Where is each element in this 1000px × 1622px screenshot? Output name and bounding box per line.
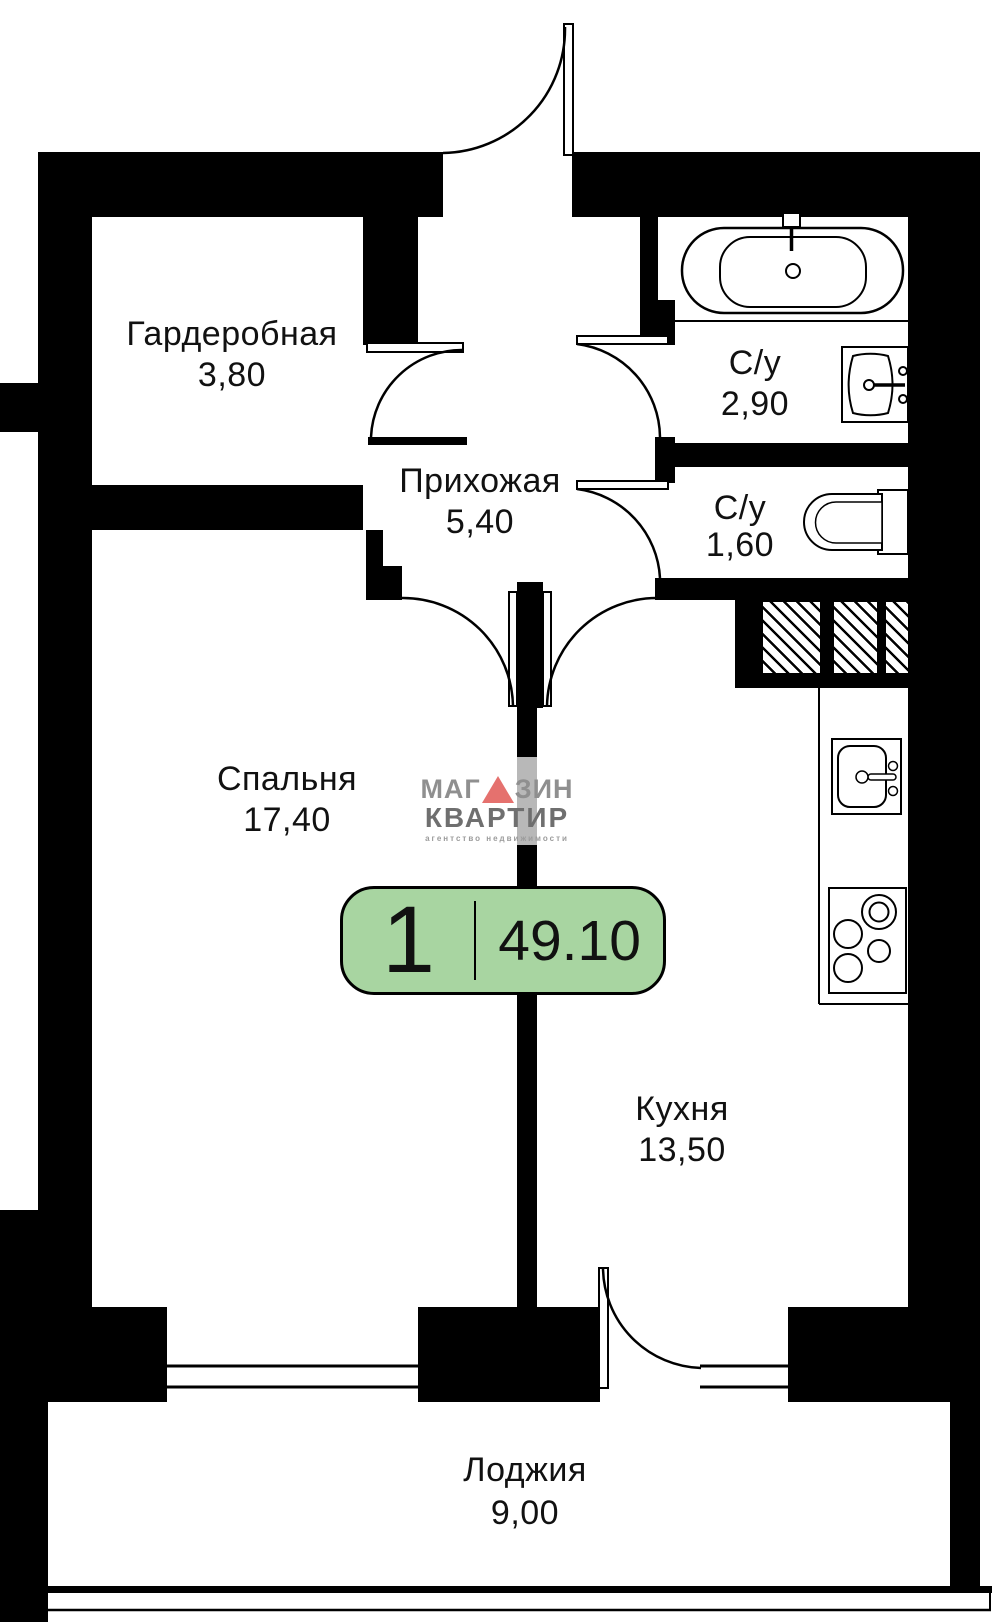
room-area: 13,50 bbox=[532, 1130, 832, 1171]
bathtub-icon bbox=[682, 213, 903, 313]
agency-logo: МАГ ЗИН КВАРТИР агентство недвижимости bbox=[417, 776, 577, 843]
room-area: 3,80 bbox=[82, 355, 382, 396]
bedroom-door-arc bbox=[402, 598, 513, 706]
room-name: Гардеробная bbox=[82, 314, 382, 355]
room-name: Прихожая bbox=[330, 461, 630, 502]
loggia-glazing bbox=[48, 1586, 992, 1610]
room-name: С/у bbox=[590, 490, 890, 527]
kitchen-door-arc bbox=[547, 598, 658, 706]
badge-total-area: 49.10 bbox=[476, 908, 663, 974]
logo-text: ЗИН bbox=[515, 776, 574, 803]
room-area: 2,90 bbox=[605, 384, 905, 425]
room-name: Кухня bbox=[532, 1089, 832, 1130]
logo-triangle-icon bbox=[482, 776, 514, 803]
kitchen-sink-icon bbox=[832, 739, 901, 814]
logo-word-kvartir: КВАРТИР bbox=[417, 803, 577, 833]
stove-icon bbox=[829, 888, 906, 993]
room-area: 9,00 bbox=[375, 1492, 675, 1535]
room-area: 1,60 bbox=[590, 527, 890, 564]
room-area: 17,40 bbox=[137, 800, 437, 841]
balcony-door-arc bbox=[603, 1268, 701, 1368]
entrance-door-arc bbox=[443, 27, 565, 153]
badge-rooms-count: 1 bbox=[343, 886, 474, 995]
room-label-wardrobe: Гардеробная 3,80 bbox=[82, 314, 382, 396]
wardrobe-door-arc bbox=[371, 350, 463, 437]
logo-text: МАГ bbox=[420, 776, 480, 803]
room-label-bathroom-2: С/у 1,60 bbox=[590, 490, 890, 564]
logo-tagline: агентство недвижимости bbox=[417, 834, 577, 843]
apartment-badge: 1 49.10 bbox=[340, 886, 666, 995]
floor-plan: Гардеробная 3,80 Прихожая 5,40 С/у 2,90 … bbox=[0, 0, 1000, 1622]
room-label-bathroom-1: С/у 2,90 bbox=[605, 343, 905, 425]
room-label-kitchen: Кухня 13,50 bbox=[532, 1089, 832, 1171]
room-label-hallway: Прихожая 5,40 bbox=[330, 461, 630, 543]
windows bbox=[167, 1366, 788, 1387]
room-label-bedroom: Спальня 17,40 bbox=[137, 759, 437, 841]
logo-word-magazin: МАГ ЗИН bbox=[417, 776, 577, 803]
room-label-loggia: Лоджия 9,00 bbox=[375, 1449, 675, 1535]
room-name: Спальня bbox=[137, 759, 437, 800]
room-name: С/у bbox=[605, 343, 905, 384]
room-name: Лоджия bbox=[375, 1449, 675, 1492]
balcony-door-leaf bbox=[599, 1268, 608, 1388]
room-area: 5,40 bbox=[330, 502, 630, 543]
